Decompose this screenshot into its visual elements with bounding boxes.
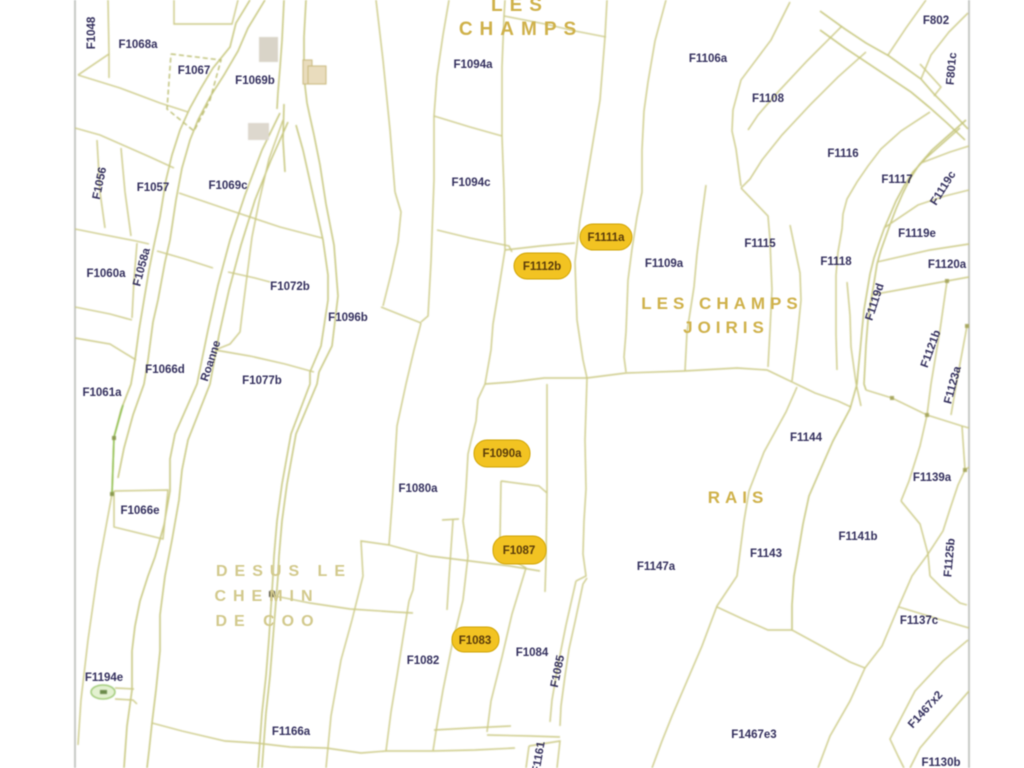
svg-text:F1061a: F1061a	[82, 387, 122, 399]
svg-text:F1166a: F1166a	[272, 726, 311, 738]
svg-text:F1116: F1116	[827, 148, 858, 160]
svg-text:F1106a: F1106a	[689, 53, 728, 65]
svg-text:DE COO: DE COO	[215, 613, 320, 630]
svg-text:F1048: F1048	[86, 16, 98, 49]
svg-text:F1083: F1083	[459, 635, 492, 647]
svg-text:F802: F802	[923, 15, 949, 27]
svg-text:F1096b: F1096b	[328, 312, 368, 324]
svg-text:LES CHAMPS: LES CHAMPS	[641, 294, 802, 313]
svg-text:F1118: F1118	[820, 256, 852, 268]
svg-text:F1082: F1082	[407, 655, 440, 667]
svg-text:F1084: F1084	[516, 647, 549, 659]
svg-text:F1069c: F1069c	[208, 180, 248, 192]
svg-text:F1087: F1087	[503, 545, 536, 557]
svg-text:F1111a: F1111a	[587, 232, 625, 244]
svg-text:LES: LES	[491, 0, 549, 16]
svg-text:F1068a: F1068a	[118, 39, 158, 51]
svg-text:F1194e: F1194e	[85, 672, 123, 684]
svg-text:F1144: F1144	[790, 432, 823, 444]
svg-text:F1080a: F1080a	[398, 483, 438, 495]
svg-text:F1130b: F1130b	[922, 757, 961, 768]
svg-text:F1066d: F1066d	[145, 364, 185, 376]
svg-text:F1143: F1143	[750, 548, 782, 560]
svg-text:F1115: F1115	[744, 238, 776, 250]
svg-text:F1060a: F1060a	[86, 268, 126, 280]
svg-text:F1120a: F1120a	[928, 259, 967, 271]
svg-text:F1109a: F1109a	[645, 258, 684, 270]
svg-text:F1112b: F1112b	[523, 261, 561, 273]
svg-text:F1069b: F1069b	[235, 75, 275, 87]
svg-text:F1094c: F1094c	[451, 177, 491, 189]
svg-text:F1077b: F1077b	[242, 375, 282, 387]
svg-text:F1090a: F1090a	[482, 448, 522, 460]
svg-text:F1119e: F1119e	[898, 228, 936, 240]
svg-text:F1137c: F1137c	[900, 615, 939, 627]
svg-text:DESUS LE: DESUS LE	[216, 563, 352, 580]
svg-text:F1067: F1067	[178, 65, 211, 77]
svg-text:F1108: F1108	[752, 93, 785, 105]
svg-text:F1066e: F1066e	[120, 505, 159, 517]
svg-text:JOIRIS: JOIRIS	[683, 318, 769, 337]
svg-text:RAIS: RAIS	[708, 488, 769, 507]
svg-text:CHAMPS: CHAMPS	[459, 19, 583, 40]
svg-text:F1141b: F1141b	[839, 531, 878, 543]
svg-text:F1467e3: F1467e3	[731, 729, 776, 741]
svg-text:F1139a: F1139a	[913, 472, 952, 484]
svg-text:F1094a: F1094a	[453, 59, 493, 71]
svg-text:F1072b: F1072b	[270, 281, 310, 293]
svg-text:CHEMIN: CHEMIN	[214, 588, 319, 605]
svg-text:F1117: F1117	[881, 174, 912, 186]
svg-text:F1057: F1057	[137, 182, 170, 194]
svg-text:F1147a: F1147a	[637, 561, 676, 573]
